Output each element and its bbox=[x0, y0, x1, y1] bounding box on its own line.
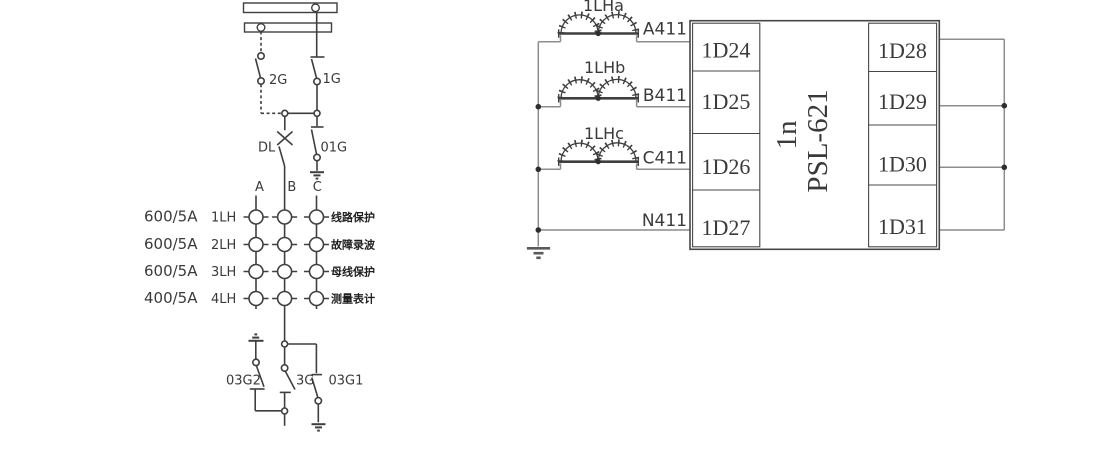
wire-label-n411: N411 bbox=[642, 211, 687, 231]
ct-ratio-label: 600/5A bbox=[144, 262, 198, 280]
relay-designation: 1n bbox=[771, 120, 803, 150]
ct-label-1lha: 1LHa bbox=[583, 0, 624, 15]
switch-label-03g1: 03G1 bbox=[329, 374, 364, 389]
switch-label-01g: 01G bbox=[321, 141, 348, 156]
busbar-top bbox=[244, 3, 338, 13]
terminal-1d24: 1D24 bbox=[702, 38, 751, 63]
wire-label-c411: C411 bbox=[643, 149, 687, 169]
ct-purpose-label: 母线保护 bbox=[331, 265, 375, 279]
circuit-breaker-dl bbox=[277, 116, 292, 166]
ct-purpose-label: 线路保护 bbox=[331, 210, 375, 224]
disconnector-3g bbox=[280, 347, 295, 426]
ct-purpose-label: 故障录波 bbox=[331, 238, 376, 252]
ct-name-label: 4LH bbox=[211, 292, 236, 307]
ct-name-label: 3LH bbox=[211, 265, 236, 280]
ct-symbol-1lhb bbox=[558, 79, 639, 102]
terminal-1d28: 1D28 bbox=[878, 38, 927, 63]
ct-name-label: 1LH bbox=[211, 210, 236, 225]
ct-ratio-label: 600/5A bbox=[144, 208, 198, 226]
phase-label-c: C bbox=[313, 180, 322, 195]
terminal-1d27: 1D27 bbox=[702, 215, 751, 240]
ct-symbol-1lhc bbox=[558, 143, 639, 166]
switch-label-03g2: 03G2 bbox=[226, 374, 261, 389]
left-one-line-diagram bbox=[244, 3, 338, 431]
ct-purpose-label: 测量表计 bbox=[331, 292, 375, 306]
terminal-1d31: 1D31 bbox=[878, 214, 927, 239]
terminal-1d25: 1D25 bbox=[702, 89, 751, 114]
terminal-1d29: 1D29 bbox=[878, 89, 927, 114]
relay-model: PSL-621 bbox=[802, 89, 834, 192]
ct-ratio-label: 600/5A bbox=[144, 235, 198, 253]
phase-label-b: B bbox=[287, 180, 296, 195]
phase-label-a: A bbox=[255, 180, 264, 195]
junction-node bbox=[282, 408, 288, 414]
ct-name-label: 2LH bbox=[211, 238, 236, 253]
ct-label-1lhc: 1LHc bbox=[584, 124, 624, 143]
ct-ratio-label: 400/5A bbox=[144, 289, 198, 307]
wire-label-b411: B411 bbox=[643, 86, 687, 106]
busbar-second bbox=[245, 23, 332, 32]
ground-icon bbox=[527, 248, 550, 257]
ct-label-1lhb: 1LHb bbox=[584, 58, 625, 77]
ground-icon bbox=[310, 172, 324, 178]
ct-row-2lh bbox=[244, 238, 330, 252]
ct-row-3lh bbox=[244, 265, 330, 279]
junction-node bbox=[314, 110, 320, 116]
ground-icon bbox=[249, 334, 264, 340]
junction-node bbox=[282, 341, 288, 347]
switch-label-3g: 3G bbox=[296, 374, 314, 389]
ct-row-1lh bbox=[244, 210, 330, 224]
switch-label-1g: 1G bbox=[323, 72, 341, 87]
wire-label-a411: A411 bbox=[643, 20, 687, 40]
terminal-1d30: 1D30 bbox=[878, 152, 927, 177]
switch-label-dl: DL bbox=[258, 141, 276, 156]
terminal-1d26: 1D26 bbox=[702, 154, 751, 179]
ct-symbol-1lha bbox=[558, 15, 639, 38]
switch-label-2g: 2G bbox=[269, 73, 287, 88]
ct-row-4lh bbox=[244, 292, 330, 306]
ct-wiring-diagram-page: 2G 1G DL 01G A B C 600/5A 600/5A 600/5A … bbox=[0, 0, 1112, 458]
junction-node bbox=[282, 110, 288, 116]
ct-symbols bbox=[558, 15, 639, 166]
ground-icon bbox=[312, 424, 326, 430]
